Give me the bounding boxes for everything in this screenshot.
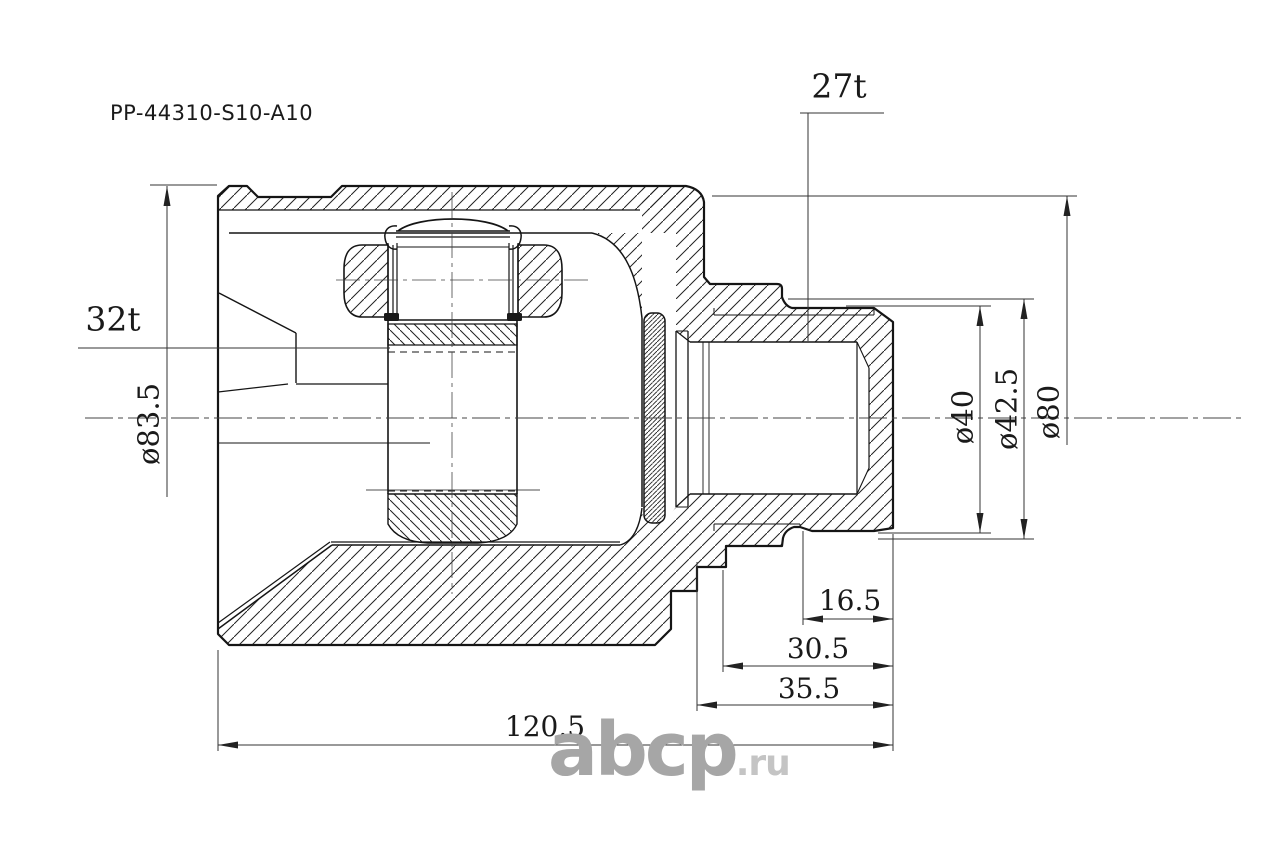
dim-ring-od-label: ø42.5 xyxy=(993,368,1022,450)
hidden-spline-lines xyxy=(388,352,517,491)
spline-count-27t-label: 27t xyxy=(811,70,866,103)
watermark: abcp.ru xyxy=(548,707,790,793)
right-roller xyxy=(518,245,562,317)
dim-16-5-label: 16.5 xyxy=(819,587,881,615)
hub-lower-band xyxy=(388,494,517,543)
dim-35-5-label: 35.5 xyxy=(778,675,840,703)
right-seal xyxy=(507,313,522,321)
spline-27t-leader xyxy=(800,113,884,341)
cv-joint-technical-drawing: PP-44310-S10-A10 27t 32t ø83.5 ø40 ø42.5… xyxy=(0,0,1280,866)
watermark-tld: .ru xyxy=(736,743,790,784)
part-number: PP-44310-S10-A10 xyxy=(110,103,313,124)
tripod-assembly xyxy=(344,219,562,543)
dim-30-5-label: 30.5 xyxy=(787,635,849,663)
needle-cage xyxy=(388,243,518,320)
dim-flange-od-label: ø80 xyxy=(1035,385,1064,439)
left-roller xyxy=(344,245,388,317)
dim-housing-od-label: ø83.5 xyxy=(135,383,164,465)
hub-spline-band xyxy=(388,324,517,345)
dimension-arrows xyxy=(164,186,1071,749)
left-seal xyxy=(384,313,399,321)
spline-count-32t-label: 32t xyxy=(85,303,140,336)
watermark-brand: abcp xyxy=(548,707,736,793)
dim-shaft-od-label: ø40 xyxy=(949,390,978,444)
retainer-cap xyxy=(385,219,521,249)
